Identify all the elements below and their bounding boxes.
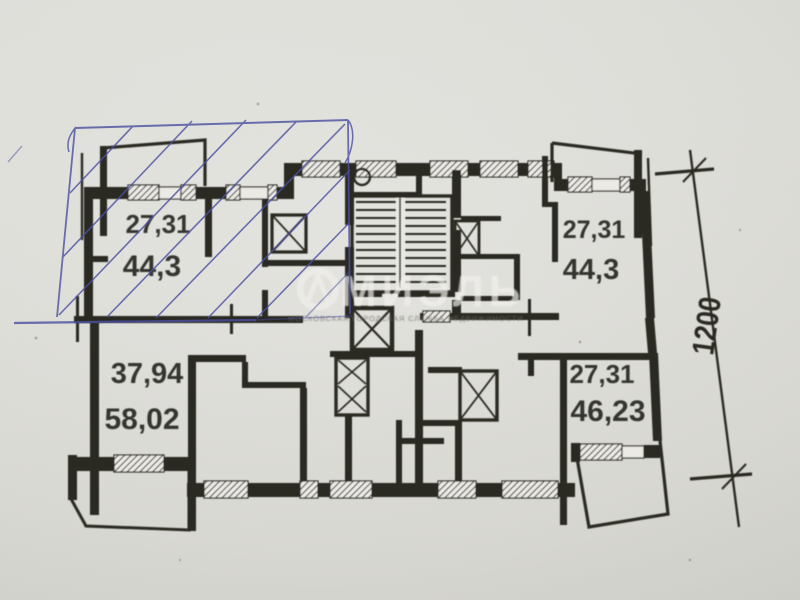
window	[430, 161, 468, 177]
watermark-brand: МИЭЛЬ	[340, 267, 525, 316]
window	[114, 455, 164, 472]
window	[580, 444, 622, 460]
bottom-exterior-wall	[187, 481, 575, 498]
area-total-bottom-right: 46,23	[570, 395, 645, 428]
window	[438, 481, 476, 498]
window	[568, 177, 592, 192]
area-total-top-left: 44,3	[123, 250, 181, 283]
floor-plan-svg: 1200 27,31 44,3 27,31 44,3 37,94 58,02 2…	[0, 0, 800, 600]
window	[620, 177, 630, 192]
area-total-top-right: 44,3	[563, 254, 619, 286]
window	[528, 161, 554, 177]
window	[128, 185, 159, 200]
area-living-top-right: 27,31	[563, 216, 626, 244]
apartment-top-left-walls	[84, 163, 345, 318]
area-living-bottom-left: 37,94	[111, 358, 184, 390]
area-living-bottom-right: 27,31	[569, 359, 634, 389]
window	[502, 481, 558, 498]
watermark-logo-icon	[300, 271, 336, 307]
lower-core	[330, 308, 497, 483]
watermark: МИЭЛЬ МОСКОВСКАЯ ГОРОДСКАЯ СЛУЖБА НЕДВИЖ…	[288, 267, 525, 323]
floor-plan-photo: 1200 27,31 44,3 27,31 44,3 37,94 58,02 2…	[0, 0, 800, 600]
top-exterior-wall	[290, 161, 562, 191]
window	[181, 185, 196, 200]
balcony-bottom-left	[70, 471, 189, 530]
window	[330, 481, 372, 498]
window	[204, 481, 248, 498]
window	[480, 161, 518, 177]
vent-shaft-icon	[336, 358, 368, 415]
ink-drawing: 1200 27,31 44,3 27,31 44,3 37,94 58,02 2…	[35, 103, 752, 561]
window	[300, 481, 318, 498]
dimension-value: 1200	[685, 295, 728, 357]
vent-shaft-icon	[460, 371, 497, 420]
area-total-bottom-left: 58,02	[104, 403, 179, 436]
watermark-tagline: МОСКОВСКАЯ ГОРОДСКАЯ СЛУЖБА НЕДВИЖИМОСТИ	[288, 314, 524, 323]
